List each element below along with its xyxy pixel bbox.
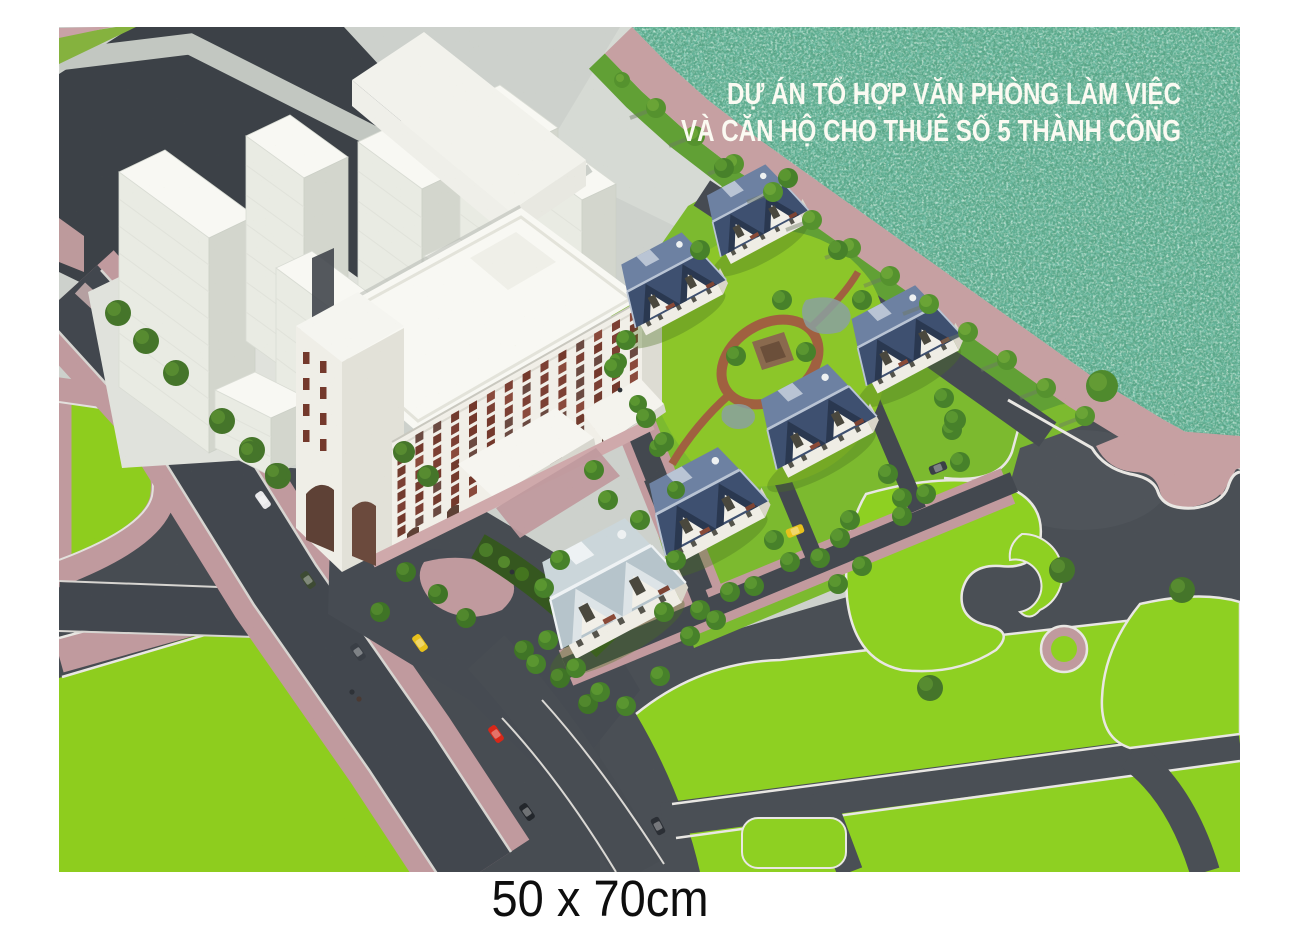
svg-text:VÀ CĂN HỘ CHO THUÊ SỐ 5 THÀNH: VÀ CĂN HỘ CHO THUÊ SỐ 5 THÀNH CÔNG [681, 112, 1181, 148]
svg-text:50 x 70cm: 50 x 70cm [492, 870, 709, 927]
svg-text:DỰ ÁN TỔ HỢP VĂN PHÒNG LÀM VIỆ: DỰ ÁN TỔ HỢP VĂN PHÒNG LÀM VIỆC [727, 75, 1181, 111]
